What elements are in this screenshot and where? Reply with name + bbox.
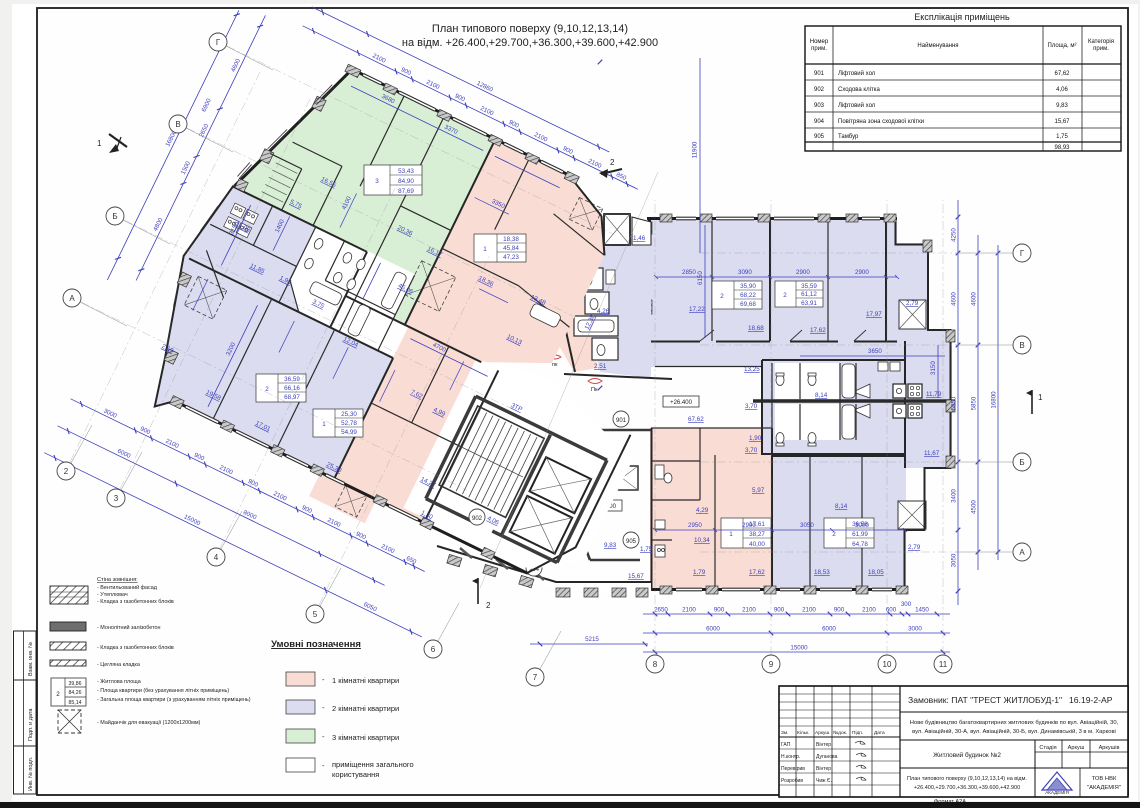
svg-text:2: 2 (64, 467, 69, 476)
svg-text:Найменування: Найменування (917, 42, 958, 49)
svg-text:4,29: 4,29 (696, 507, 709, 514)
svg-text:67,62: 67,62 (1054, 71, 1070, 77)
svg-text:9,83: 9,83 (1056, 103, 1068, 109)
svg-text:63,91: 63,91 (801, 300, 817, 307)
svg-text:2100: 2100 (682, 607, 696, 614)
svg-text:4: 4 (214, 553, 219, 562)
svg-text:Аркуш: Аркуш (815, 730, 829, 736)
svg-text:Б: Б (1019, 458, 1024, 467)
svg-text:905: 905 (814, 134, 825, 140)
svg-text:87,69: 87,69 (398, 188, 414, 195)
svg-text:Стіна зовнішня:: Стіна зовнішня: (97, 577, 138, 583)
svg-text:Взам. инв. №: Взам. инв. № (28, 642, 34, 676)
svg-text:ГАП: ГАП (781, 742, 791, 748)
svg-text:Повітряна зона сходової клітки: Повітряна зона сходової клітки (838, 119, 924, 125)
svg-text:300: 300 (901, 601, 912, 608)
svg-text:900: 900 (774, 607, 785, 614)
svg-text:Нове будівництво багатоквартир: Нове будівництво багатоквартирних житлов… (910, 719, 1119, 726)
svg-text:69,68: 69,68 (740, 301, 756, 308)
svg-text:11900: 11900 (692, 141, 699, 158)
svg-text:- Утеплювач: - Утеплювач (97, 592, 128, 598)
svg-text:905: 905 (626, 539, 637, 545)
svg-text:900: 900 (834, 607, 845, 614)
svg-text:52,78: 52,78 (341, 420, 357, 427)
svg-text:2 кімнатні квартири: 2 кімнатні квартири (332, 704, 399, 713)
svg-text:35,90: 35,90 (740, 283, 756, 290)
svg-text:6000: 6000 (822, 626, 836, 633)
svg-text:3000: 3000 (908, 626, 922, 633)
svg-text:- Житлова площа: - Житлова площа (97, 679, 141, 685)
svg-text:ТОВ НВК: ТОВ НВК (1092, 776, 1117, 782)
svg-text:9,83: 9,83 (604, 542, 617, 549)
svg-text:1: 1 (97, 139, 102, 148)
svg-text:1 кімнатні квартири: 1 кімнатні квартири (332, 676, 399, 685)
svg-text:2100: 2100 (742, 607, 756, 614)
svg-text:Вінтер: Вінтер (816, 766, 831, 772)
svg-text:66,16: 66,16 (284, 385, 300, 392)
svg-text:3650: 3650 (868, 348, 882, 355)
svg-text:15,67: 15,67 (628, 573, 644, 580)
svg-text:64,78: 64,78 (852, 541, 868, 548)
svg-text:АКАДЕМІЯ: АКАДЕМІЯ (1045, 790, 1069, 795)
svg-text:2100: 2100 (802, 607, 816, 614)
svg-text:4600: 4600 (971, 292, 978, 306)
svg-text:1,75: 1,75 (640, 546, 653, 553)
svg-text:"АКАДЕМІЯ": "АКАДЕМІЯ" (1087, 785, 1121, 791)
svg-text:10: 10 (883, 660, 892, 669)
svg-text:2: 2 (832, 531, 836, 538)
svg-text:17,22: 17,22 (689, 306, 705, 313)
svg-text:- Площа квартири (без урахуван: - Площа квартири (без урахування літніх … (97, 688, 229, 694)
svg-text:В: В (1019, 341, 1024, 350)
svg-text:11,79: 11,79 (926, 391, 942, 398)
svg-text:План типового поверху (9,10,12: План типового поверху (9,10,12,13,14) на… (907, 776, 1027, 782)
svg-text:Г: Г (216, 38, 221, 47)
svg-text:47,23: 47,23 (503, 254, 519, 261)
svg-text:900: 900 (714, 607, 725, 614)
svg-text:2: 2 (486, 601, 491, 610)
svg-text:15000: 15000 (790, 645, 808, 652)
svg-text:5850: 5850 (971, 396, 978, 410)
svg-text:3: 3 (375, 178, 379, 185)
svg-text:8,14: 8,14 (835, 503, 848, 510)
svg-text:11,67: 11,67 (924, 450, 940, 457)
svg-text:А: А (69, 294, 75, 303)
svg-text:39,86: 39,86 (69, 681, 82, 687)
svg-text:1,46: 1,46 (633, 235, 646, 242)
svg-text:902: 902 (472, 516, 483, 522)
svg-text:- Вентильований фасад: - Вентильований фасад (97, 584, 158, 591)
svg-text:8: 8 (653, 660, 658, 669)
svg-text:2900: 2900 (855, 269, 869, 276)
svg-text:3050: 3050 (800, 522, 814, 529)
svg-text:1,79: 1,79 (693, 569, 706, 576)
svg-text:10,34: 10,34 (694, 537, 710, 544)
svg-text:25,30: 25,30 (341, 411, 357, 418)
svg-text:Умовні позначення: Умовні позначення (271, 639, 361, 650)
svg-text:3,70: 3,70 (745, 403, 758, 410)
svg-text:18,38: 18,38 (503, 236, 519, 243)
svg-text:пк: пк (552, 362, 558, 368)
svg-text:Тамбур: Тамбур (838, 134, 859, 140)
svg-text:6000: 6000 (706, 626, 720, 633)
svg-text:Житловий будинок №2: Житловий будинок №2 (933, 751, 1001, 759)
svg-text:Категорія: Категорія (1088, 39, 1114, 45)
svg-text:18,05: 18,05 (868, 569, 884, 576)
svg-text:6150: 6150 (697, 271, 704, 285)
svg-text:Ліфтовий хол: Ліфтовий хол (838, 70, 876, 77)
svg-text:4250: 4250 (951, 228, 958, 242)
svg-text:Подп. и дата: Подп. и дата (28, 708, 34, 741)
svg-text:Аркушів: Аркушів (1099, 745, 1120, 751)
svg-text:Пк: Пк (591, 387, 598, 393)
svg-text:Дуганова: Дуганова (816, 754, 838, 760)
svg-text:прим.: прим. (1093, 46, 1109, 52)
svg-text:№док.: №док. (833, 730, 847, 736)
svg-text:2,79: 2,79 (906, 300, 919, 307)
svg-text:2100: 2100 (862, 607, 876, 614)
svg-text:901: 901 (814, 71, 825, 77)
svg-text:Номер: Номер (810, 39, 829, 45)
svg-text:- Загальна площа квартири (з у: - Загальна площа квартири (з урахуванням… (97, 697, 251, 703)
svg-text:А: А (1019, 548, 1025, 557)
svg-text:3400: 3400 (951, 489, 958, 503)
svg-text:вул. Авіаційній, 30-А, вул. Ав: вул. Авіаційній, 30-А, вул. Авіаційній, … (912, 728, 1116, 735)
svg-text:Ліфтовий хол: Ліфтовий хол (838, 102, 876, 109)
svg-text:- Цегляна кладка: - Цегляна кладка (97, 662, 140, 668)
svg-text:1: 1 (322, 421, 326, 428)
svg-text:4,26: 4,26 (597, 308, 610, 315)
svg-text:15,67: 15,67 (1054, 119, 1070, 125)
svg-text:35,59: 35,59 (801, 283, 817, 290)
svg-text:2: 2 (783, 292, 787, 299)
svg-text:5,97: 5,97 (752, 487, 765, 494)
svg-text:- Монолітний залізобетон: - Монолітний залізобетон (97, 624, 160, 631)
svg-text:18,53: 18,53 (814, 569, 830, 576)
svg-text:68,22: 68,22 (740, 292, 756, 299)
svg-text:користування: користування (332, 770, 379, 779)
svg-text:2850: 2850 (682, 269, 696, 276)
svg-text:Дата: Дата (874, 730, 885, 736)
svg-text:903: 903 (814, 103, 825, 109)
svg-text:11: 11 (939, 660, 948, 669)
svg-text:18,68: 18,68 (748, 325, 764, 332)
svg-text:98,93: 98,93 (1054, 145, 1070, 151)
svg-text:Підп.: Підп. (852, 730, 863, 736)
svg-text:3050: 3050 (951, 553, 958, 567)
svg-text:Розробив: Розробив (781, 778, 803, 784)
svg-text:2650: 2650 (654, 607, 668, 614)
svg-text:67,62: 67,62 (688, 416, 704, 423)
svg-text:17,62: 17,62 (810, 327, 826, 334)
svg-text:Перевірив: Перевірив (781, 766, 805, 772)
svg-text:53,43: 53,43 (398, 168, 414, 175)
svg-text:3150: 3150 (930, 361, 937, 375)
svg-text:Чиж Є.: Чиж Є. (816, 778, 832, 784)
svg-text:7: 7 (533, 673, 538, 682)
svg-text:Вінтер: Вінтер (816, 742, 831, 748)
svg-text:61,99: 61,99 (852, 531, 868, 538)
svg-text:38,27: 38,27 (749, 531, 765, 538)
svg-text:Зм.: Зм. (781, 730, 789, 736)
svg-text:17,97: 17,97 (866, 311, 882, 318)
svg-text:4500: 4500 (971, 500, 978, 514)
svg-text:9: 9 (769, 660, 774, 669)
svg-text:- Кладка з газобетонних блоків: - Кладка з газобетонних блоків (97, 599, 174, 605)
svg-text:Аркуш: Аркуш (1068, 745, 1085, 751)
svg-text:13,25: 13,25 (744, 366, 760, 373)
svg-text:3000: 3000 (855, 522, 869, 529)
svg-text:Г: Г (1020, 249, 1025, 258)
svg-text:5: 5 (313, 610, 318, 619)
svg-text:- Кладка з газобетонних блоків: - Кладка з газобетонних блоків (97, 645, 174, 651)
svg-text:4600: 4600 (951, 292, 958, 306)
svg-text:16800: 16800 (991, 391, 998, 409)
svg-text:прим.: прим. (811, 46, 827, 52)
svg-text:61,12: 61,12 (801, 291, 817, 298)
svg-text:17,62: 17,62 (749, 569, 765, 576)
svg-text:2950: 2950 (688, 522, 702, 529)
svg-text:- Майданчік для евакуації (120: - Майданчік для евакуації (1200х1200мм) (97, 719, 201, 726)
svg-text:Б: Б (112, 212, 117, 221)
svg-text:85,14: 85,14 (69, 700, 82, 706)
svg-text:3090: 3090 (738, 269, 752, 276)
svg-text:Сходова клітка: Сходова клітка (838, 87, 880, 93)
svg-text:1,75: 1,75 (1056, 134, 1068, 140)
svg-text:3: 3 (114, 494, 119, 503)
svg-text:1: 1 (483, 246, 487, 253)
svg-text:6: 6 (431, 645, 436, 654)
svg-text:План типового поверху (9,10,12: План типового поверху (9,10,12,13,14) (432, 23, 628, 35)
svg-text:68,97: 68,97 (284, 394, 300, 401)
svg-text:600: 600 (886, 607, 897, 614)
svg-text:5850: 5850 (951, 396, 958, 410)
svg-text:Кільк.: Кільк. (797, 730, 810, 736)
svg-text:902: 902 (814, 87, 825, 93)
svg-text:на відм. +26.400,+29.700,+36.3: на відм. +26.400,+29.700,+36.300,+39.600… (402, 37, 658, 49)
svg-text:40,00: 40,00 (749, 541, 765, 548)
svg-text:+26.400: +26.400 (670, 400, 693, 406)
svg-text:3,70: 3,70 (745, 447, 758, 454)
svg-text:В: В (175, 120, 180, 129)
svg-text:приміщення загального: приміщення загального (332, 760, 414, 769)
svg-text:16.19-2-АР: 16.19-2-АР (1069, 695, 1113, 705)
svg-text:Стадія: Стадія (1039, 745, 1056, 751)
svg-text:8,14: 8,14 (815, 392, 828, 399)
svg-text:4,06: 4,06 (1056, 87, 1068, 93)
svg-text:Замовник: ПАТ "ТРЕСТ ЖИТЛОБУД-: Замовник: ПАТ "ТРЕСТ ЖИТЛОБУД-1" (908, 695, 1062, 705)
svg-text:2: 2 (610, 158, 615, 167)
svg-text:2900: 2900 (742, 522, 756, 529)
svg-text:Н.контр.: Н.контр. (781, 754, 800, 760)
svg-text:5215: 5215 (585, 636, 599, 643)
svg-text:2: 2 (720, 293, 724, 300)
svg-text:+26.400,+29.700,+36.300,+39.60: +26.400,+29.700,+36.300,+39.600,+42.900 (914, 785, 1020, 791)
svg-text:1: 1 (1038, 393, 1043, 402)
svg-text:2900: 2900 (796, 269, 810, 276)
svg-text:2,51: 2,51 (594, 363, 607, 370)
svg-text:Площа, м²: Площа, м² (1048, 43, 1077, 49)
svg-text:904: 904 (814, 119, 825, 125)
svg-text:Експлікація приміщень: Експлікація приміщень (914, 12, 1010, 22)
svg-text:1450: 1450 (915, 607, 929, 614)
svg-text:1: 1 (729, 531, 733, 538)
svg-text:36,59: 36,59 (284, 376, 300, 383)
svg-text:84,26: 84,26 (69, 690, 82, 696)
svg-text:84,90: 84,90 (398, 178, 414, 185)
svg-text:1,90: 1,90 (749, 435, 762, 442)
svg-text:Инв. № подл.: Инв. № подл. (28, 756, 34, 791)
svg-text:2,79: 2,79 (908, 544, 921, 551)
svg-text:45,84: 45,84 (503, 245, 519, 252)
svg-text:3 кімнатні квартири: 3 кімнатні квартири (332, 733, 399, 742)
svg-text:901: 901 (616, 418, 627, 424)
